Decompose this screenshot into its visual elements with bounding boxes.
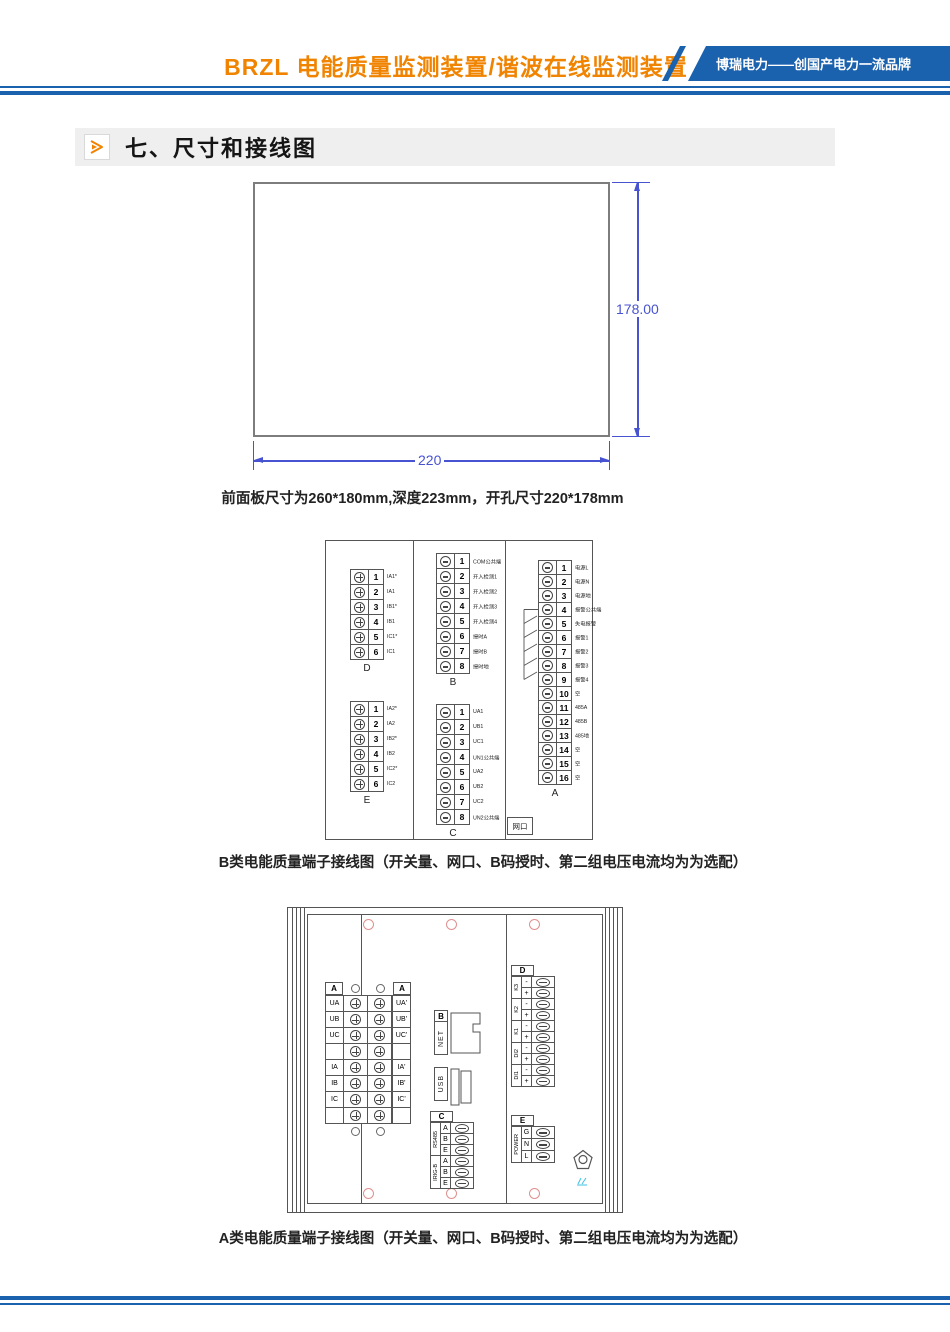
diagram-a-caption: A类电能质量端子接线图（开关量、网口、B码授时、第二组电压电流均为为选配） bbox=[8, 1227, 950, 1248]
terminal-block-b: 1 COM公共端 2 开入检测1 3 开入检测2 bbox=[436, 553, 505, 688]
screw-minus-icon bbox=[542, 618, 553, 629]
terminal-number: 10 bbox=[557, 686, 572, 701]
arrow-down-icon bbox=[634, 428, 640, 437]
comm-group-label: IRIG-B bbox=[433, 1164, 439, 1181]
screw-plus-icon bbox=[350, 1014, 361, 1025]
terminal-label: 报警4 bbox=[575, 676, 589, 684]
arrow-left-icon bbox=[254, 457, 263, 463]
terminal-number: 7 bbox=[455, 643, 470, 659]
power-group-label: POWER bbox=[514, 1134, 520, 1155]
screw-terminal-icon bbox=[455, 1168, 469, 1177]
terminal-row: 3 IB1* bbox=[350, 599, 399, 615]
terminal-row: 5 IC1* bbox=[350, 629, 399, 645]
screw-minus-icon bbox=[440, 586, 451, 597]
brand-banner: 博瑞电力——创国产电力一流品牌 bbox=[676, 46, 950, 81]
width-ext-right bbox=[609, 441, 610, 470]
screw-terminal-icon bbox=[536, 1128, 550, 1137]
terminal-number: 4 bbox=[369, 746, 384, 762]
screw-plus-icon bbox=[350, 1078, 361, 1089]
screw-plus-icon bbox=[374, 1078, 385, 1089]
screw-plus-icon bbox=[350, 1030, 361, 1041]
screw-terminal-icon bbox=[536, 1000, 550, 1009]
terminal-label: UA2 bbox=[473, 769, 483, 774]
terminal-row: 2 UB1 bbox=[436, 719, 503, 735]
screw-minus-icon bbox=[440, 571, 451, 582]
terminal-number: 4 bbox=[557, 602, 572, 617]
terminal-block-d: 1 IA1* 2 IA1 3 IB1* bbox=[350, 569, 399, 674]
terminal-label: 开入检测3 bbox=[473, 602, 497, 610]
terminal-number: 2 bbox=[455, 719, 470, 735]
screw-terminal-icon bbox=[536, 1011, 550, 1020]
analog-row: UC UC' bbox=[325, 1027, 411, 1044]
screw-minus-icon bbox=[542, 730, 553, 741]
terminal-label: IA bbox=[325, 1059, 344, 1076]
io-group: DI1 - + bbox=[511, 1064, 555, 1087]
screw-minus-icon bbox=[542, 772, 553, 783]
terminal-row: 6 授时A bbox=[436, 628, 505, 644]
screw-terminal-icon bbox=[455, 1135, 469, 1144]
terminal-row: 3 电源地 bbox=[538, 588, 605, 603]
analog-row bbox=[325, 1043, 411, 1060]
usb-label: USB bbox=[438, 1075, 445, 1092]
screw-minus-icon bbox=[440, 797, 451, 808]
screw-terminal-icon bbox=[536, 1022, 550, 1031]
terminal-number: 5 bbox=[455, 613, 470, 629]
terminal-label: 空 bbox=[575, 774, 580, 782]
terminal-row: 4 UN1公共端 bbox=[436, 749, 503, 765]
terminal-row: 1 COM公共端 bbox=[436, 553, 505, 569]
terminal-row: 2 IA2 bbox=[350, 716, 399, 732]
screw-terminal-icon bbox=[536, 1044, 550, 1053]
screw-terminal-icon bbox=[536, 1066, 550, 1075]
terminal-label bbox=[392, 1107, 411, 1124]
comm-terminal-block: C RS485 A B E bbox=[430, 1111, 474, 1189]
terminal-row: 2 开入检测1 bbox=[436, 568, 505, 584]
ethernet-port-box: 网口 bbox=[507, 817, 533, 835]
terminal-number: 7 bbox=[455, 794, 470, 810]
screw-minus-icon bbox=[542, 660, 553, 671]
block-name: C bbox=[430, 1111, 453, 1122]
terminal-label bbox=[325, 1043, 344, 1060]
terminal-label: 开入检测1 bbox=[473, 572, 497, 580]
terminal-row: 1 IA2* bbox=[350, 701, 399, 717]
block-name: A bbox=[538, 788, 572, 799]
arrow-up-icon bbox=[634, 182, 640, 191]
block-name: E bbox=[350, 795, 384, 806]
side-rail bbox=[296, 908, 297, 1212]
terminal-label: UB' bbox=[392, 1011, 411, 1028]
screw-minus-icon bbox=[440, 661, 451, 672]
terminal-label: 失电报警 bbox=[575, 620, 596, 628]
terminal-label: IA2 bbox=[387, 721, 395, 726]
screw-minus-icon bbox=[542, 744, 553, 755]
analog-row: UB UB' bbox=[325, 1011, 411, 1028]
terminal-row: 14 空 bbox=[538, 742, 605, 757]
terminal-label: IA' bbox=[392, 1059, 411, 1076]
comm-group: RS485 A B E bbox=[430, 1122, 474, 1156]
screw-terminal-icon bbox=[536, 1140, 550, 1149]
terminal-row: 4 IB2 bbox=[350, 746, 399, 762]
arrow-right-icon bbox=[600, 457, 609, 463]
io-group-label: DI1 bbox=[514, 1071, 520, 1080]
terminal-number: 1 bbox=[369, 701, 384, 717]
terminal-row: 2 IA1 bbox=[350, 584, 399, 600]
stamp-mark bbox=[575, 1175, 589, 1187]
side-rail bbox=[304, 908, 305, 1212]
screw-terminal-icon bbox=[536, 1077, 550, 1086]
header-rule-thick bbox=[0, 91, 950, 95]
terminal-row: 2 电源N bbox=[538, 574, 605, 589]
terminal-number: 4 bbox=[369, 614, 384, 630]
terminal-row: 4 IB1 bbox=[350, 614, 399, 630]
side-rail bbox=[613, 908, 614, 1212]
screw-minus-icon bbox=[440, 601, 451, 612]
screw-plus-icon bbox=[374, 1014, 385, 1025]
terminal-label: 授时地 bbox=[473, 662, 489, 670]
screw-plus-icon bbox=[350, 1046, 361, 1057]
screw-minus-icon bbox=[440, 812, 451, 823]
terminal-number: 4 bbox=[455, 598, 470, 614]
terminal-row: 1 UA1 bbox=[436, 704, 503, 720]
terminal-label: UC bbox=[325, 1027, 344, 1044]
screw-terminal-icon bbox=[536, 978, 550, 987]
terminal-label: UA bbox=[325, 995, 344, 1012]
terminal-number: 2 bbox=[455, 568, 470, 584]
screw-plus-icon bbox=[350, 998, 361, 1009]
block-name: A bbox=[393, 982, 411, 995]
brand-slogan: 博瑞电力——创国产电力一流品牌 bbox=[716, 54, 911, 73]
terminal-number: 13 bbox=[557, 728, 572, 743]
terminal-row: 3 UC1 bbox=[436, 734, 503, 750]
terminal-number: 3 bbox=[369, 599, 384, 615]
terminal-label: 485A bbox=[575, 705, 587, 710]
terminal-number: 6 bbox=[455, 628, 470, 644]
width-ext-left bbox=[253, 441, 254, 470]
screw-plus-icon bbox=[354, 572, 365, 583]
screw-plus-icon bbox=[350, 1110, 361, 1121]
terminal-label: UC1 bbox=[473, 739, 484, 744]
footer-rule-thick bbox=[0, 1296, 950, 1300]
terminal-label: UC' bbox=[392, 1027, 411, 1044]
screw-plus-icon bbox=[354, 764, 365, 775]
terminal-number: 1 bbox=[455, 704, 470, 720]
terminal-number: 1 bbox=[369, 569, 384, 585]
terminal-number: 6 bbox=[455, 779, 470, 795]
terminal-label bbox=[325, 1107, 344, 1124]
terminal-label: IA1* bbox=[387, 574, 397, 579]
terminal-label: IB1* bbox=[387, 604, 397, 609]
rear-panel: A A UA UA' bbox=[307, 914, 603, 1204]
mounting-hole-icon bbox=[446, 919, 457, 930]
io-group-label: K1 bbox=[514, 1028, 520, 1035]
terminal-number: 8 bbox=[455, 658, 470, 674]
height-dimension-label: 178.00 bbox=[613, 301, 662, 317]
hole-icon bbox=[376, 1127, 385, 1136]
terminal-label: IB bbox=[325, 1075, 344, 1092]
terminal-row: 8 授时地 bbox=[436, 658, 505, 674]
screw-plus-icon bbox=[354, 602, 365, 613]
terminal-number: 2 bbox=[557, 574, 572, 589]
terminal-row: 8 报警3 bbox=[538, 658, 605, 673]
terminal-block-a: 1 电源L 2 电源N 3 电源地 bbox=[538, 560, 605, 799]
terminal-label: IB' bbox=[392, 1075, 411, 1092]
terminal-row: 1 IA1* bbox=[350, 569, 399, 585]
analog-row: IA IA' bbox=[325, 1059, 411, 1076]
column-divider bbox=[505, 541, 506, 839]
power-terminal-block: E POWER G N L bbox=[511, 1115, 555, 1163]
terminal-label: IC' bbox=[392, 1091, 411, 1108]
terminal-number: 5 bbox=[557, 616, 572, 631]
io-terminal-block: D K3 - + bbox=[511, 965, 555, 1087]
terminal-number: 1 bbox=[557, 560, 572, 575]
terminal-label: IB1 bbox=[387, 619, 395, 624]
terminal-number: 8 bbox=[557, 658, 572, 673]
usb-port: USB bbox=[434, 1067, 474, 1107]
terminal-label: 电源N bbox=[575, 578, 589, 586]
screw-plus-icon bbox=[374, 1062, 385, 1073]
block-name: E bbox=[511, 1115, 534, 1126]
analog-row bbox=[325, 1107, 411, 1124]
terminal-number: 4 bbox=[455, 749, 470, 765]
terminal-label: IC2 bbox=[387, 781, 395, 786]
analog-row: IC IC' bbox=[325, 1091, 411, 1108]
terminal-row: 6 IC1 bbox=[350, 644, 399, 660]
screw-minus-icon bbox=[440, 616, 451, 627]
terminal-label: 报警2 bbox=[575, 648, 589, 656]
terminal-row: 16 空 bbox=[538, 770, 605, 785]
terminal-row: 8 UN2公共端 bbox=[436, 809, 503, 825]
side-rail bbox=[300, 908, 301, 1212]
screw-minus-icon bbox=[440, 782, 451, 793]
screw-plus-icon bbox=[354, 734, 365, 745]
terminal-row: 5 IC2* bbox=[350, 761, 399, 777]
terminal-block-c: 1 UA1 2 UB1 3 UC1 bbox=[436, 704, 503, 839]
terminal-number: 12 bbox=[557, 714, 572, 729]
terminal-row: 1 电源L bbox=[538, 560, 605, 575]
screw-plus-icon bbox=[374, 1030, 385, 1041]
terminal-row: 10 空 bbox=[538, 686, 605, 701]
diagram-b-type: 1 IA1* 2 IA1 3 IB1* bbox=[325, 540, 593, 840]
hole-icon bbox=[351, 984, 360, 993]
terminal-number: 5 bbox=[455, 764, 470, 780]
screw-minus-icon bbox=[542, 632, 553, 643]
screw-plus-icon bbox=[374, 1110, 385, 1121]
terminal-block-e: 1 IA2* 2 IA2 3 IB2* bbox=[350, 701, 399, 806]
side-rail bbox=[617, 908, 618, 1212]
footer-rule-thin bbox=[0, 1303, 950, 1305]
io-group: K2 - + bbox=[511, 998, 555, 1021]
screw-minus-icon bbox=[542, 590, 553, 601]
terminal-label: 电源地 bbox=[575, 592, 591, 600]
diagram-b-caption: B类电能质量端子接线图（开关量、网口、B码授时、第二组电压电流均为为选配） bbox=[8, 851, 950, 872]
terminal-label: UB2 bbox=[473, 784, 483, 789]
front-panel-outline bbox=[253, 182, 610, 437]
hole-icon bbox=[351, 1127, 360, 1136]
screw-minus-icon bbox=[542, 758, 553, 769]
screw-plus-icon bbox=[354, 647, 365, 658]
screw-plus-icon bbox=[354, 779, 365, 790]
terminal-label: IC1* bbox=[387, 634, 397, 639]
terminal-label: UB1 bbox=[473, 724, 483, 729]
terminal-row: 5 UA2 bbox=[436, 764, 503, 780]
screw-minus-icon bbox=[440, 707, 451, 718]
ethernet-port: B NET bbox=[434, 1010, 482, 1056]
screw-plus-icon bbox=[350, 1094, 361, 1105]
terminal-row: 7 授时B bbox=[436, 643, 505, 659]
screw-minus-icon bbox=[440, 646, 451, 657]
terminal-number: 14 bbox=[557, 742, 572, 757]
screw-plus-icon bbox=[354, 617, 365, 628]
screw-plus-icon bbox=[354, 632, 365, 643]
terminal-row: 7 报警2 bbox=[538, 644, 605, 659]
terminal-number: 3 bbox=[369, 731, 384, 747]
terminal-label: 报警1 bbox=[575, 634, 589, 642]
terminal-label: 报警3 bbox=[575, 662, 589, 670]
screw-terminal-icon bbox=[536, 1152, 550, 1161]
screw-minus-icon bbox=[542, 576, 553, 587]
terminal-label: 485地 bbox=[575, 732, 589, 740]
block-name: B bbox=[436, 677, 470, 688]
terminal-row: 3 开入检测2 bbox=[436, 583, 505, 599]
terminal-label: IC1 bbox=[387, 649, 395, 654]
io-group-label: K2 bbox=[514, 1006, 520, 1013]
terminal-row: 11 485A bbox=[538, 700, 605, 715]
block-name: C bbox=[436, 828, 470, 839]
terminal-label: 报警公共端 bbox=[575, 606, 601, 614]
terminal-number: 2 bbox=[369, 716, 384, 732]
screw-plus-icon bbox=[354, 704, 365, 715]
terminal-label bbox=[392, 1043, 411, 1060]
diagram-a-type: A A UA UA' bbox=[287, 907, 623, 1213]
terminal-label: 空 bbox=[575, 690, 580, 698]
terminal-row: 13 485地 bbox=[538, 728, 605, 743]
terminal-row: 4 报警公共端 bbox=[538, 602, 605, 617]
io-group: K3 - + bbox=[511, 976, 555, 999]
screw-plus-icon bbox=[354, 749, 365, 760]
terminal-label: 485B bbox=[575, 719, 587, 724]
terminal-number: 1 bbox=[455, 553, 470, 569]
relay-contact-wiring bbox=[518, 560, 538, 800]
mounting-hole-icon bbox=[446, 1188, 457, 1199]
section-title: 七、尺寸和接线图 bbox=[125, 131, 317, 163]
terminal-label: IA2* bbox=[387, 706, 397, 711]
height-ext-bottom bbox=[612, 436, 650, 437]
terminal-number: 2 bbox=[369, 584, 384, 600]
terminal-row: 5 开入检测4 bbox=[436, 613, 505, 629]
section-header: 七、尺寸和接线图 bbox=[75, 128, 835, 166]
terminal-number: 3 bbox=[557, 588, 572, 603]
height-ext-top bbox=[612, 182, 650, 183]
io-group: DI2 - + bbox=[511, 1042, 555, 1065]
analog-row: UA UA' bbox=[325, 995, 411, 1012]
terminal-label: IA1 bbox=[387, 589, 395, 594]
screw-plus-icon bbox=[350, 1062, 361, 1073]
terminal-label: UA1 bbox=[473, 709, 483, 714]
dimension-caption: 前面板尺寸为260*180mm,深度223mm，开孔尺寸220*178mm bbox=[0, 487, 845, 508]
io-group-label: K3 bbox=[514, 984, 520, 991]
io-group-label: DI2 bbox=[514, 1049, 520, 1058]
analog-row: IB IB' bbox=[325, 1075, 411, 1092]
terminal-number: 6 bbox=[557, 630, 572, 645]
block-name: A bbox=[325, 982, 343, 995]
screw-terminal-icon bbox=[455, 1124, 469, 1133]
usb-connector-icon bbox=[450, 1067, 474, 1107]
header-rule-thin bbox=[0, 86, 950, 88]
analog-terminal-block: A A UA UA' bbox=[325, 981, 411, 1138]
net-label: NET bbox=[438, 1030, 445, 1047]
terminal-label: UN2公共端 bbox=[473, 813, 499, 821]
mounting-hole-icon bbox=[363, 919, 374, 930]
terminal-label: 授时B bbox=[473, 647, 487, 655]
terminal-label: 授时A bbox=[473, 632, 487, 640]
terminal-row: 12 485B bbox=[538, 714, 605, 729]
manual-page: BRZL 电能质量监测装置/谐波在线监测装置 博瑞电力——创国产电力一流品牌 七… bbox=[0, 0, 950, 1332]
screw-terminal-icon bbox=[455, 1146, 469, 1155]
mounting-hole-icon bbox=[529, 1188, 540, 1199]
mounting-hole-icon bbox=[529, 919, 540, 930]
screw-plus-icon bbox=[354, 587, 365, 598]
column-divider bbox=[413, 541, 414, 839]
mounting-hole-icon bbox=[363, 1188, 374, 1199]
terminal-row: 5 失电报警 bbox=[538, 616, 605, 631]
terminal-label: IC2* bbox=[387, 766, 397, 771]
terminal-number: 6 bbox=[369, 644, 384, 660]
terminal-number: 6 bbox=[369, 776, 384, 792]
block-name: D bbox=[350, 663, 384, 674]
terminal-label: COM公共端 bbox=[473, 557, 501, 565]
ground-pentagon-icon bbox=[572, 1149, 594, 1171]
screw-terminal-icon bbox=[536, 989, 550, 998]
terminal-number: 3 bbox=[455, 583, 470, 599]
screw-plus-icon bbox=[374, 998, 385, 1009]
io-group: K1 - + bbox=[511, 1020, 555, 1043]
terminal-label: 空 bbox=[575, 760, 580, 768]
screw-terminal-icon bbox=[455, 1179, 469, 1188]
screw-minus-icon bbox=[440, 631, 451, 642]
terminal-label: UB bbox=[325, 1011, 344, 1028]
terminal-number: 5 bbox=[369, 629, 384, 645]
terminal-number: 3 bbox=[455, 734, 470, 750]
screw-minus-icon bbox=[440, 722, 451, 733]
screw-plus-icon bbox=[354, 719, 365, 730]
terminal-number: 15 bbox=[557, 756, 572, 771]
screw-minus-icon bbox=[542, 646, 553, 657]
comm-group: IRIG-B A B E bbox=[430, 1155, 474, 1189]
screw-minus-icon bbox=[542, 702, 553, 713]
terminal-number: 5 bbox=[369, 761, 384, 777]
rj45-jack-icon bbox=[450, 1010, 482, 1056]
screw-terminal-icon bbox=[536, 1055, 550, 1064]
terminal-label: 开入检测2 bbox=[473, 587, 497, 595]
terminal-row: 6 IC2 bbox=[350, 776, 399, 792]
terminal-label: 电源L bbox=[575, 564, 589, 572]
side-rail bbox=[605, 908, 606, 1212]
hole-icon bbox=[376, 984, 385, 993]
terminal-row: 3 IB2* bbox=[350, 731, 399, 747]
screw-plus-icon bbox=[374, 1094, 385, 1105]
terminal-label: IB2* bbox=[387, 736, 397, 741]
comm-group-label: RS485 bbox=[433, 1131, 439, 1148]
terminal-row: 6 UB2 bbox=[436, 779, 503, 795]
screw-terminal-icon bbox=[455, 1157, 469, 1166]
screw-minus-icon bbox=[542, 674, 553, 685]
terminal-row: 9 报警4 bbox=[538, 672, 605, 687]
screw-minus-icon bbox=[440, 752, 451, 763]
terminal-row: 4 开入检测3 bbox=[436, 598, 505, 614]
terminal-label: UC2 bbox=[473, 799, 484, 804]
panel-divider bbox=[506, 915, 507, 1203]
screw-minus-icon bbox=[542, 716, 553, 727]
